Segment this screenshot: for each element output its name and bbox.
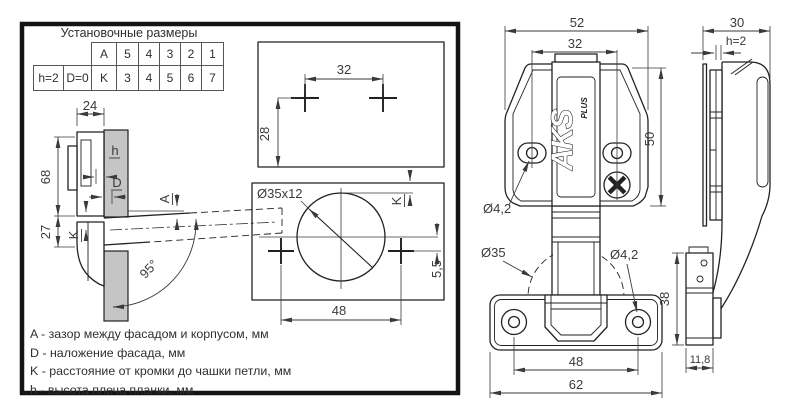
brand-logo: AKS xyxy=(546,109,579,171)
section-view: 24 68 27 h xyxy=(38,98,282,321)
dim-30-label: 30 xyxy=(730,15,744,30)
opening-angle-label: 95° xyxy=(137,257,161,282)
dim-50-label: 50 xyxy=(642,132,657,146)
table-cell: 3 xyxy=(117,66,139,91)
dim-32-front-label: 32 xyxy=(568,36,582,51)
carcass-panel-lower xyxy=(104,251,128,321)
label-a: A xyxy=(157,194,172,203)
table-cell: D=0 xyxy=(64,66,92,91)
table-cell: 5 xyxy=(160,66,181,91)
brand-logo-sub: PLUS xyxy=(580,97,589,119)
dim-32-plate: 32 xyxy=(305,62,383,92)
door-edge xyxy=(703,64,707,226)
dim-5-5-label: 5,5 xyxy=(429,260,444,278)
legend-line-a: A - зазор между фасадом и корпусом, мм xyxy=(30,325,291,344)
cup-opening xyxy=(545,295,607,341)
dim-5-5: 5,5 xyxy=(414,223,444,278)
table-cell: 7 xyxy=(202,66,224,91)
legend: A - зазор между фасадом и корпусом, мм D… xyxy=(30,325,291,399)
dim-38-label: 38 xyxy=(657,292,672,306)
label-d: D xyxy=(112,175,121,190)
label-k: K xyxy=(66,230,81,239)
cup-size-label: Ø35x12 xyxy=(257,186,303,201)
legend-line-k: K - расстояние от кромки до чашки петли,… xyxy=(30,362,291,381)
dim-11-8-label: 11,8 xyxy=(690,354,711,366)
dim-28: 28 xyxy=(257,98,299,167)
dim-48-cup-label: 48 xyxy=(569,354,583,369)
table-blank-cell xyxy=(34,43,64,66)
plate-drilling-template: 32 28 xyxy=(257,42,444,167)
table-cell: 1 xyxy=(202,43,224,66)
hinge-datasheet: Установочные размеры A 5 4 3 2 1 h=2 D=0… xyxy=(0,0,800,419)
cup-dia-label: Ø35 xyxy=(481,245,506,260)
table-cell: h=2 xyxy=(34,66,64,91)
cup-drilling-template: Ø35x12 K 5,5 48 xyxy=(252,171,444,325)
table-cell: 3 xyxy=(160,43,181,66)
label-k-cup: K xyxy=(389,196,404,205)
cup-side xyxy=(686,253,713,345)
dim-48-template-label: 48 xyxy=(332,303,346,318)
table-cell: 4 xyxy=(139,66,160,91)
dim-11-8: 11,8 xyxy=(686,348,713,373)
hinge-cup-view: Ø35 Ø4,2 48 62 xyxy=(481,206,662,398)
hole-dia-front-label: Ø4,2 xyxy=(483,201,511,216)
hinge-front-view: AKS PLUS 52 32 xyxy=(483,15,666,216)
table-cell: 6 xyxy=(181,66,202,91)
dim-68-label: 68 xyxy=(38,170,53,184)
dim-28-label: 28 xyxy=(257,127,272,141)
dimensions-table: A 5 4 3 2 1 h=2 D=0 K 3 4 5 6 7 xyxy=(33,42,224,91)
dim-32-front: 32 xyxy=(532,36,617,52)
table-cell: K xyxy=(92,66,117,91)
dim-62-label: 62 xyxy=(569,377,583,392)
legend-line-h: h - высота плеча планки, мм xyxy=(30,381,291,400)
hinge-side-view: 30 h=2 38 11,8 xyxy=(657,15,770,373)
dim-a: A xyxy=(128,193,184,230)
dim-h2: h=2 xyxy=(691,34,747,60)
label-h: h xyxy=(111,143,118,158)
cup-dia-callout: Ø35 xyxy=(481,245,532,277)
table-cell: 2 xyxy=(181,43,202,66)
hole-dia-cup-label: Ø4,2 xyxy=(610,247,638,262)
table-cell: 4 xyxy=(139,43,160,66)
dim-24-label: 24 xyxy=(83,98,97,113)
dim-k-cup: K xyxy=(341,171,413,207)
dim-h2-label: h=2 xyxy=(726,34,747,48)
dim-52-label: 52 xyxy=(570,15,584,30)
drill-cross-marks xyxy=(291,84,397,112)
dim-32-plate-label: 32 xyxy=(337,62,351,77)
installation-table: Установочные размеры A 5 4 3 2 1 h=2 D=0… xyxy=(33,26,225,91)
dim-27-label: 27 xyxy=(38,225,53,239)
table-cell: 5 xyxy=(117,43,139,66)
dim-24: 24 xyxy=(77,98,104,126)
legend-line-d: D - наложение фасада, мм xyxy=(30,344,291,363)
table-blank-cell xyxy=(64,43,92,66)
table-title: Установочные размеры xyxy=(33,26,225,40)
table-cell: A xyxy=(92,43,117,66)
